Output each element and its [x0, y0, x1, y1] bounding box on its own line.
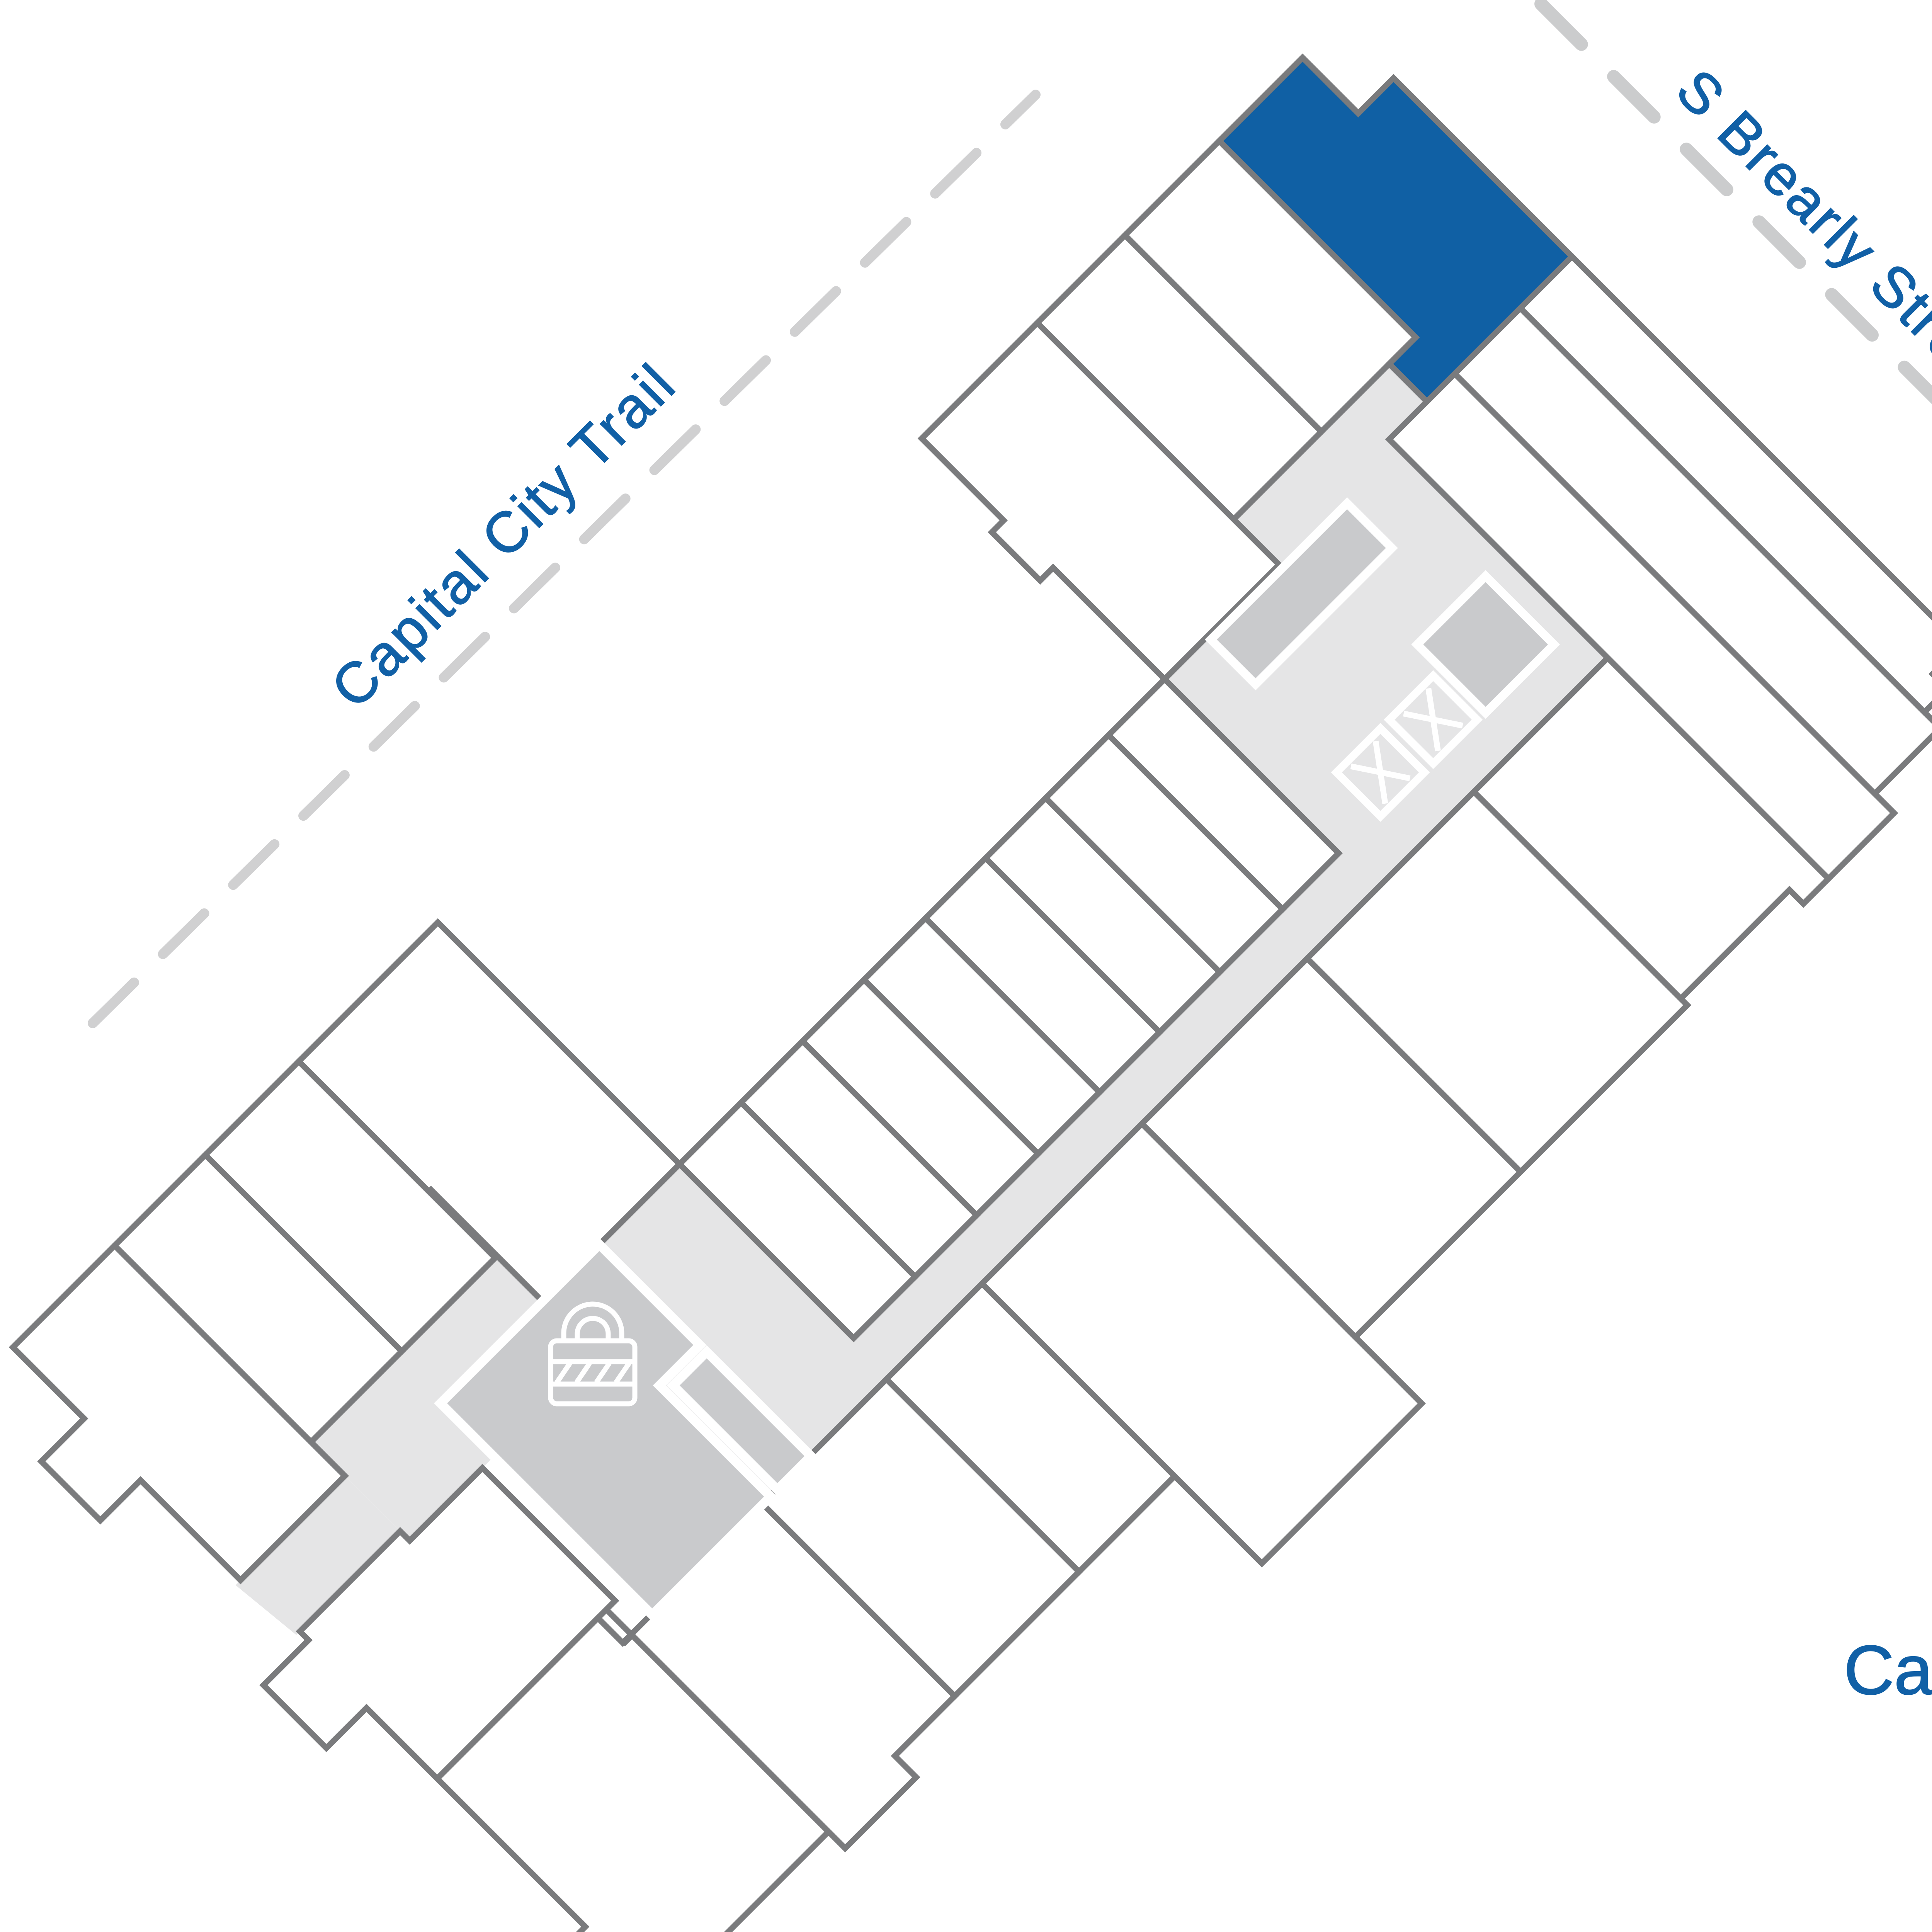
svg-text:Capitol: Capitol: [1844, 1631, 1932, 1709]
